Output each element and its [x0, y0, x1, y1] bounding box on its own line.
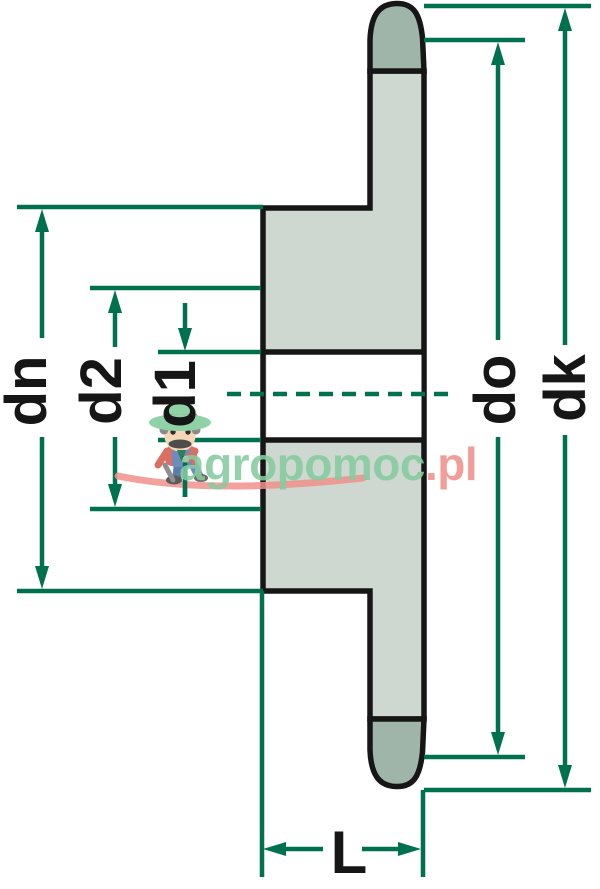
dk-arrow-down	[558, 765, 572, 788]
farmer-tool	[165, 465, 173, 480]
l-arrow-left	[263, 842, 286, 856]
l-arrow-right	[398, 842, 421, 856]
sprocket-technical-drawing: dn d2 d1 do dk L agropomoc.pl	[0, 0, 600, 889]
dn-arrow-up	[35, 209, 49, 232]
do-arrow-up	[491, 42, 505, 65]
label-dn: dn	[0, 356, 56, 427]
tooth-top	[370, 3, 424, 71]
d2-arrow-up	[108, 290, 122, 313]
label-length: L	[331, 823, 368, 883]
label-dk: dk	[537, 354, 595, 422]
watermark-text: agropomoc.pl	[179, 441, 477, 487]
label-do: do	[467, 355, 525, 426]
watermark-brand: agropomoc	[179, 438, 425, 490]
dk-arrow-up	[558, 8, 572, 31]
label-d1: d1	[147, 360, 205, 428]
tooth-bottom	[370, 719, 424, 787]
d1-arrow-down	[178, 328, 192, 351]
label-d2: d2	[73, 357, 131, 425]
do-arrow-down	[491, 732, 505, 755]
dn-arrow-down	[35, 566, 49, 589]
watermark-tld: .pl	[425, 438, 477, 490]
d2-arrow-down	[108, 484, 122, 507]
